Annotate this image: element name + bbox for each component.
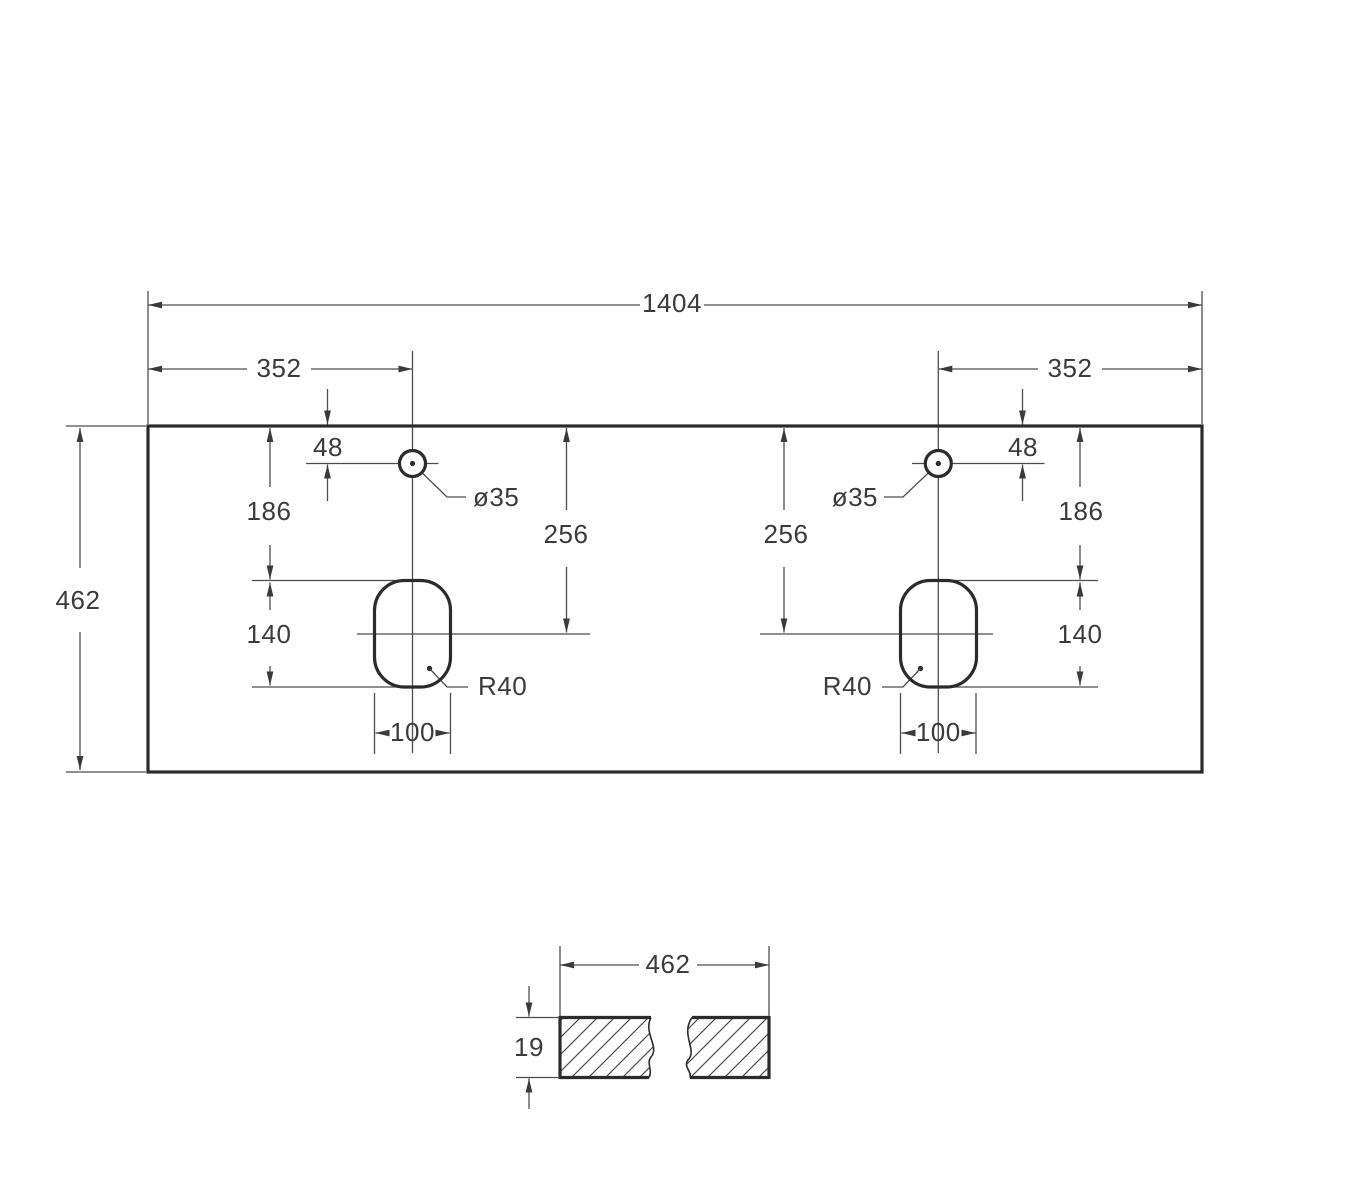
radius-right-label: R40	[823, 671, 872, 701]
dim-48-right-label: 48	[1008, 432, 1038, 462]
dim-352-left-label: 352	[257, 353, 302, 383]
dim-19-label: 19	[514, 1032, 544, 1062]
radius-left-label: R40	[478, 671, 527, 701]
dim-140-right-label: 140	[1058, 619, 1103, 649]
dim-186-left-label: 186	[247, 496, 292, 526]
faucet-hole-right-center	[936, 461, 941, 466]
dim-100-right-label: 100	[916, 717, 961, 747]
dim-100-left-label: 100	[390, 717, 435, 747]
faucet-hole-left-center	[410, 461, 415, 466]
dim-352-right-label: 352	[1048, 353, 1093, 383]
dim-section-462-label: 462	[646, 949, 691, 979]
dim-256-left-label: 256	[544, 519, 589, 549]
dim-140-left-label: 140	[247, 619, 292, 649]
dim-48-left-label: 48	[313, 432, 343, 462]
plan-view: 1404 352 352 462 48 48 186 186 256 256	[56, 288, 1202, 772]
dim-256-right-label: 256	[764, 519, 809, 549]
section-slab-left-hatch	[560, 1018, 654, 1078]
technical-drawing-svg: 1404 352 352 462 48 48 186 186 256 256	[0, 0, 1350, 1200]
drawing-canvas: 1404 352 352 462 48 48 186 186 256 256	[0, 0, 1350, 1200]
countertop-outline	[148, 426, 1202, 772]
dia-right-label: ø35	[832, 482, 878, 512]
dia-left-label: ø35	[473, 482, 519, 512]
dim-186-right-label: 186	[1059, 496, 1104, 526]
section-view: 462 19	[514, 946, 769, 1109]
section-slab-right-hatch	[686, 1018, 769, 1078]
dim-1404-label: 1404	[642, 288, 702, 318]
dim-462-label: 462	[56, 585, 101, 615]
